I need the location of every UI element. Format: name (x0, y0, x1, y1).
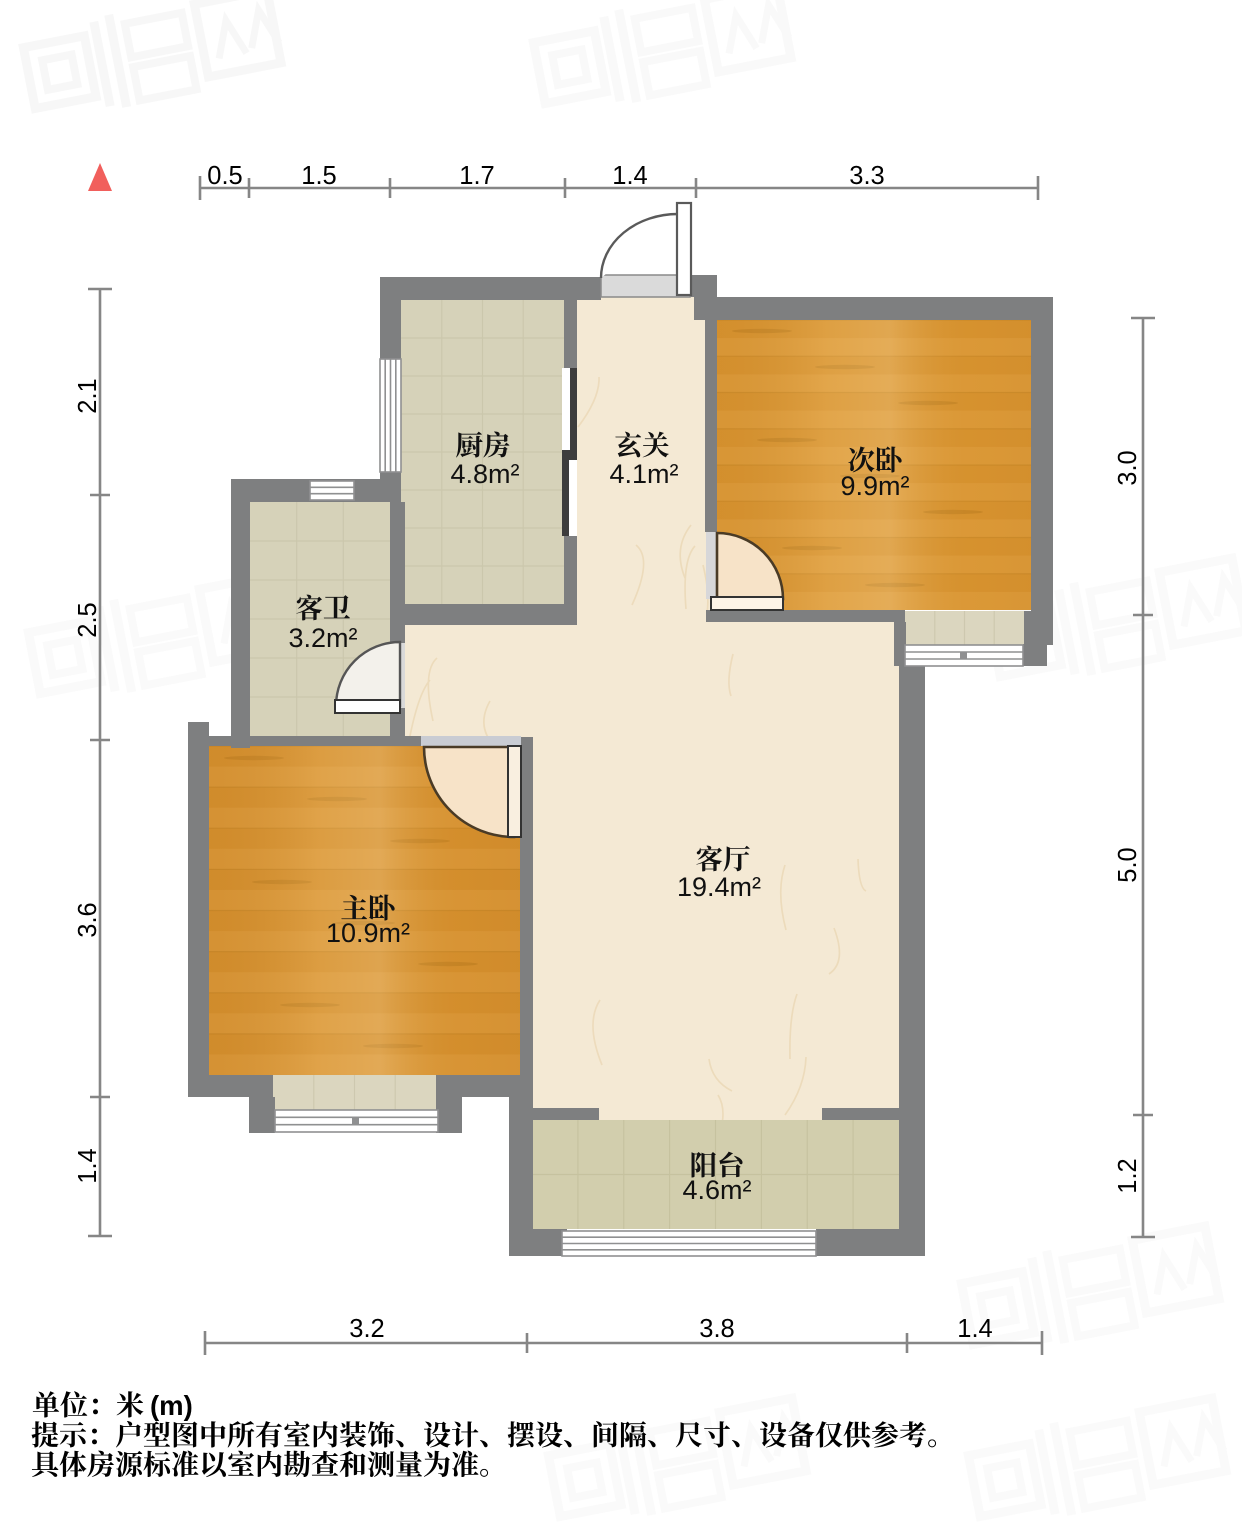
svg-text:1.7: 1.7 (459, 162, 494, 190)
svg-text:3.2m²: 3.2m² (288, 623, 357, 653)
svg-text:3.8: 3.8 (699, 1315, 734, 1343)
svg-text:3.6: 3.6 (74, 902, 102, 937)
svg-text:1.4: 1.4 (612, 162, 647, 190)
svg-text:5.0: 5.0 (1114, 847, 1142, 882)
svg-text:2.5: 2.5 (74, 602, 102, 637)
svg-text:(m): (m) (150, 1390, 193, 1421)
svg-text:2.1: 2.1 (74, 378, 102, 413)
svg-text:1.5: 1.5 (301, 162, 336, 190)
svg-text:4.8m²: 4.8m² (450, 459, 519, 489)
svg-text:3.2: 3.2 (349, 1315, 384, 1343)
svg-text:4.1m²: 4.1m² (609, 459, 678, 489)
svg-text:19.4m²: 19.4m² (677, 872, 761, 902)
svg-text:1.4: 1.4 (957, 1315, 992, 1343)
svg-text:1.4: 1.4 (74, 1148, 102, 1183)
svg-text:9.9m²: 9.9m² (840, 471, 909, 501)
svg-text:3.3: 3.3 (849, 162, 884, 190)
svg-text:10.9m²: 10.9m² (326, 918, 410, 948)
svg-text:3.0: 3.0 (1114, 450, 1142, 485)
svg-text:0.5: 0.5 (207, 162, 242, 190)
svg-text:1.2: 1.2 (1114, 1158, 1142, 1193)
svg-text:4.6m²: 4.6m² (682, 1175, 751, 1205)
